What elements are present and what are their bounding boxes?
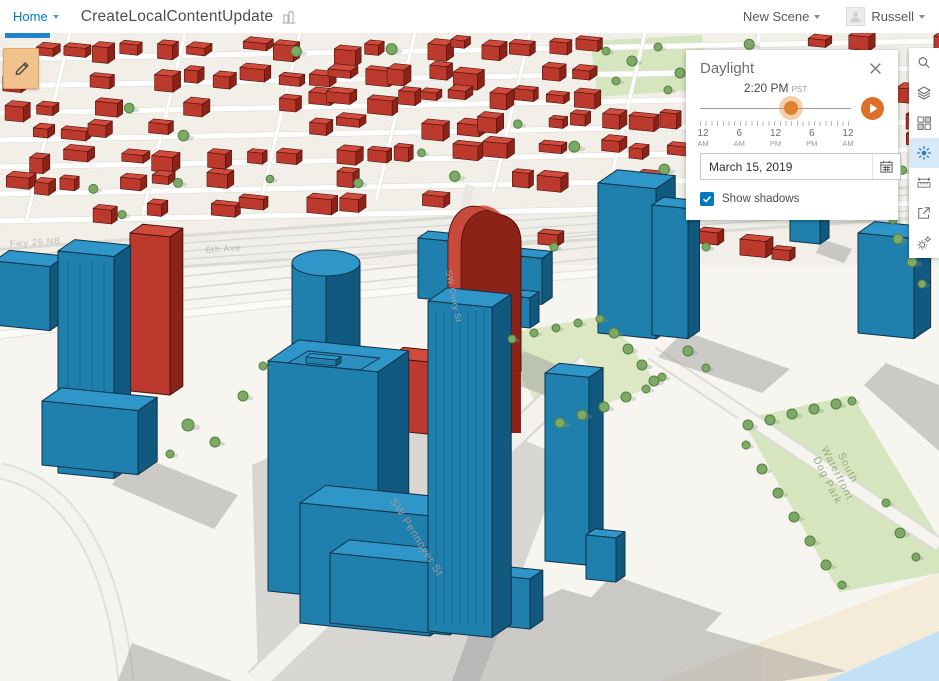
- app-header: Home CreateLocalContentUpdate New Scene …: [0, 0, 939, 33]
- timezone-label: PST: [792, 85, 808, 94]
- search-button[interactable]: [909, 48, 939, 78]
- scene-title: CreateLocalContentUpdate: [81, 8, 274, 26]
- edit-tool-button[interactable]: [3, 48, 39, 89]
- daylight-panel-title: Daylight: [700, 60, 754, 77]
- tick-label: 12AM: [842, 129, 853, 148]
- tick-label: 6PM: [806, 129, 817, 148]
- show-shadows-checkbox[interactable]: [700, 192, 714, 206]
- share-button[interactable]: [909, 198, 939, 228]
- home-label: Home: [13, 9, 48, 24]
- basemap-icon: [915, 114, 933, 132]
- progress-bar: [5, 33, 50, 38]
- time-slider[interactable]: [700, 97, 851, 121]
- basemap-button[interactable]: [909, 108, 939, 138]
- play-icon: [861, 97, 884, 120]
- slider-tick-labels: 12AM 6AM 12PM 6PM 12AM: [700, 129, 851, 151]
- time-display: 2:20 PMPST: [700, 81, 851, 95]
- scene-properties-icon[interactable]: [281, 9, 297, 25]
- layers-button[interactable]: [909, 78, 939, 108]
- tick-label: 12AM: [697, 129, 708, 148]
- daylight-button[interactable]: [909, 138, 939, 168]
- close-icon[interactable]: [867, 60, 884, 77]
- tick-label: 6AM: [734, 129, 745, 148]
- show-shadows-label: Show shadows: [722, 193, 799, 205]
- date-field[interactable]: [700, 153, 901, 180]
- layers-icon: [915, 84, 933, 102]
- search-icon: [915, 54, 933, 72]
- new-scene-menu[interactable]: New Scene: [743, 9, 820, 24]
- sun-slider-handle[interactable]: [779, 96, 803, 120]
- chevron-down-icon: [53, 15, 59, 19]
- user-name-label: Russell: [871, 9, 914, 24]
- measure-button[interactable]: [909, 168, 939, 198]
- measure-icon: [915, 174, 933, 192]
- avatar: [846, 7, 865, 26]
- daylight-panel: Daylight 2:20 PMPST 12AM 6AM 12P: [686, 50, 898, 220]
- share-icon: [915, 204, 933, 222]
- slider-ticks: [700, 121, 851, 126]
- scene-viewport[interactable]: Fwy 26 NB 6th Ave SW Curry St SW Pennoye…: [0, 33, 939, 681]
- home-menu[interactable]: Home: [13, 9, 59, 24]
- check-icon: [702, 194, 712, 204]
- chevron-down-icon: [814, 15, 820, 19]
- scene-toolbar: [909, 48, 939, 258]
- settings-button[interactable]: [909, 228, 939, 258]
- daylight-icon: [915, 144, 933, 162]
- play-time-button[interactable]: [861, 97, 884, 120]
- calendar-icon[interactable]: [872, 154, 900, 179]
- slider-track[interactable]: [700, 108, 851, 109]
- date-input[interactable]: [701, 160, 872, 174]
- pencil-icon: [11, 58, 32, 79]
- settings-gears-icon: [915, 234, 933, 252]
- time-value: 2:20 PM: [744, 81, 789, 95]
- app-window: Home CreateLocalContentUpdate New Scene …: [0, 0, 939, 681]
- tick-label: 12PM: [770, 129, 781, 148]
- new-scene-label: New Scene: [743, 9, 809, 24]
- chevron-down-icon: [919, 15, 925, 19]
- user-menu[interactable]: Russell: [846, 7, 925, 26]
